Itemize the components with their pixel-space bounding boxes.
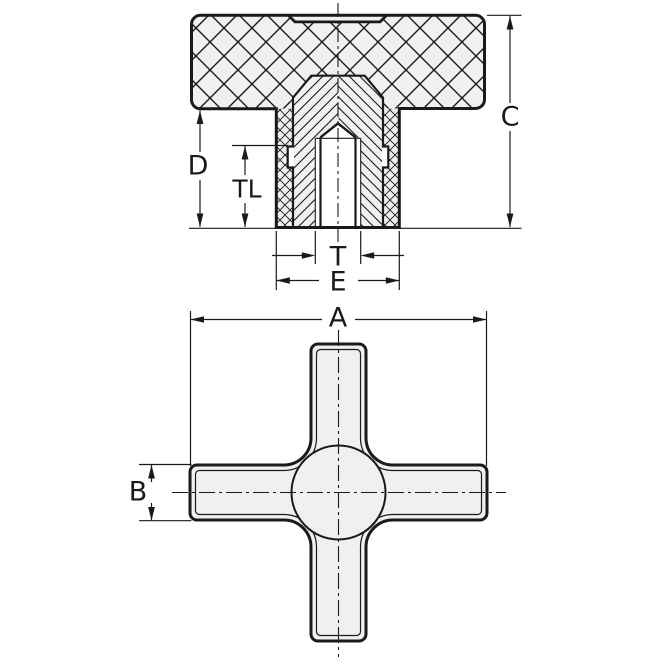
dim-label-overall-width: A [329,305,347,332]
dim-label-thread-length: TL [232,177,261,202]
dim-label-arm-thickness: B [129,479,148,506]
dim-label-hub-diameter: E [329,269,346,296]
dim-label-overall-height: C [501,104,520,131]
dim-label-hub-depth: D [188,153,209,180]
section-view-linework [192,3,485,246]
knob-technical-drawing: C D TL T E A B [0,0,670,670]
technical-drawing-svg [0,0,670,670]
plan-view-linework [172,330,506,657]
